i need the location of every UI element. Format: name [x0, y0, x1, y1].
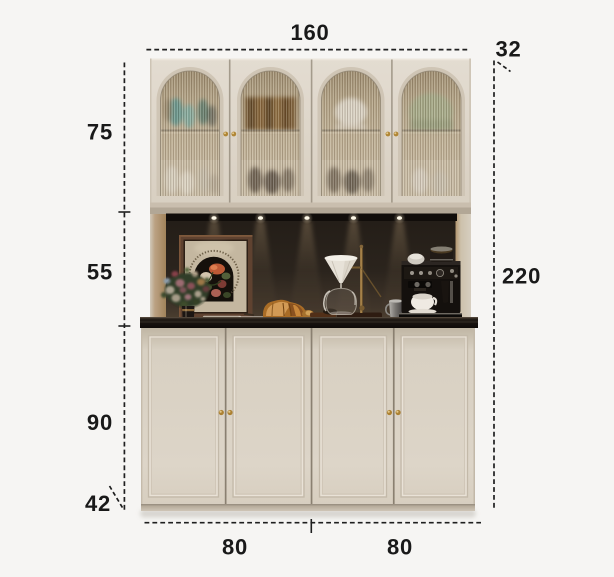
svg-text:32: 32: [495, 37, 521, 62]
svg-text:160: 160: [290, 20, 329, 45]
svg-text:90: 90: [87, 410, 113, 435]
svg-text:80: 80: [387, 535, 413, 560]
svg-text:220: 220: [502, 264, 541, 289]
svg-text:42: 42: [85, 491, 111, 516]
svg-text:75: 75: [87, 120, 113, 145]
svg-text:55: 55: [87, 260, 113, 285]
svg-text:80: 80: [222, 535, 248, 560]
